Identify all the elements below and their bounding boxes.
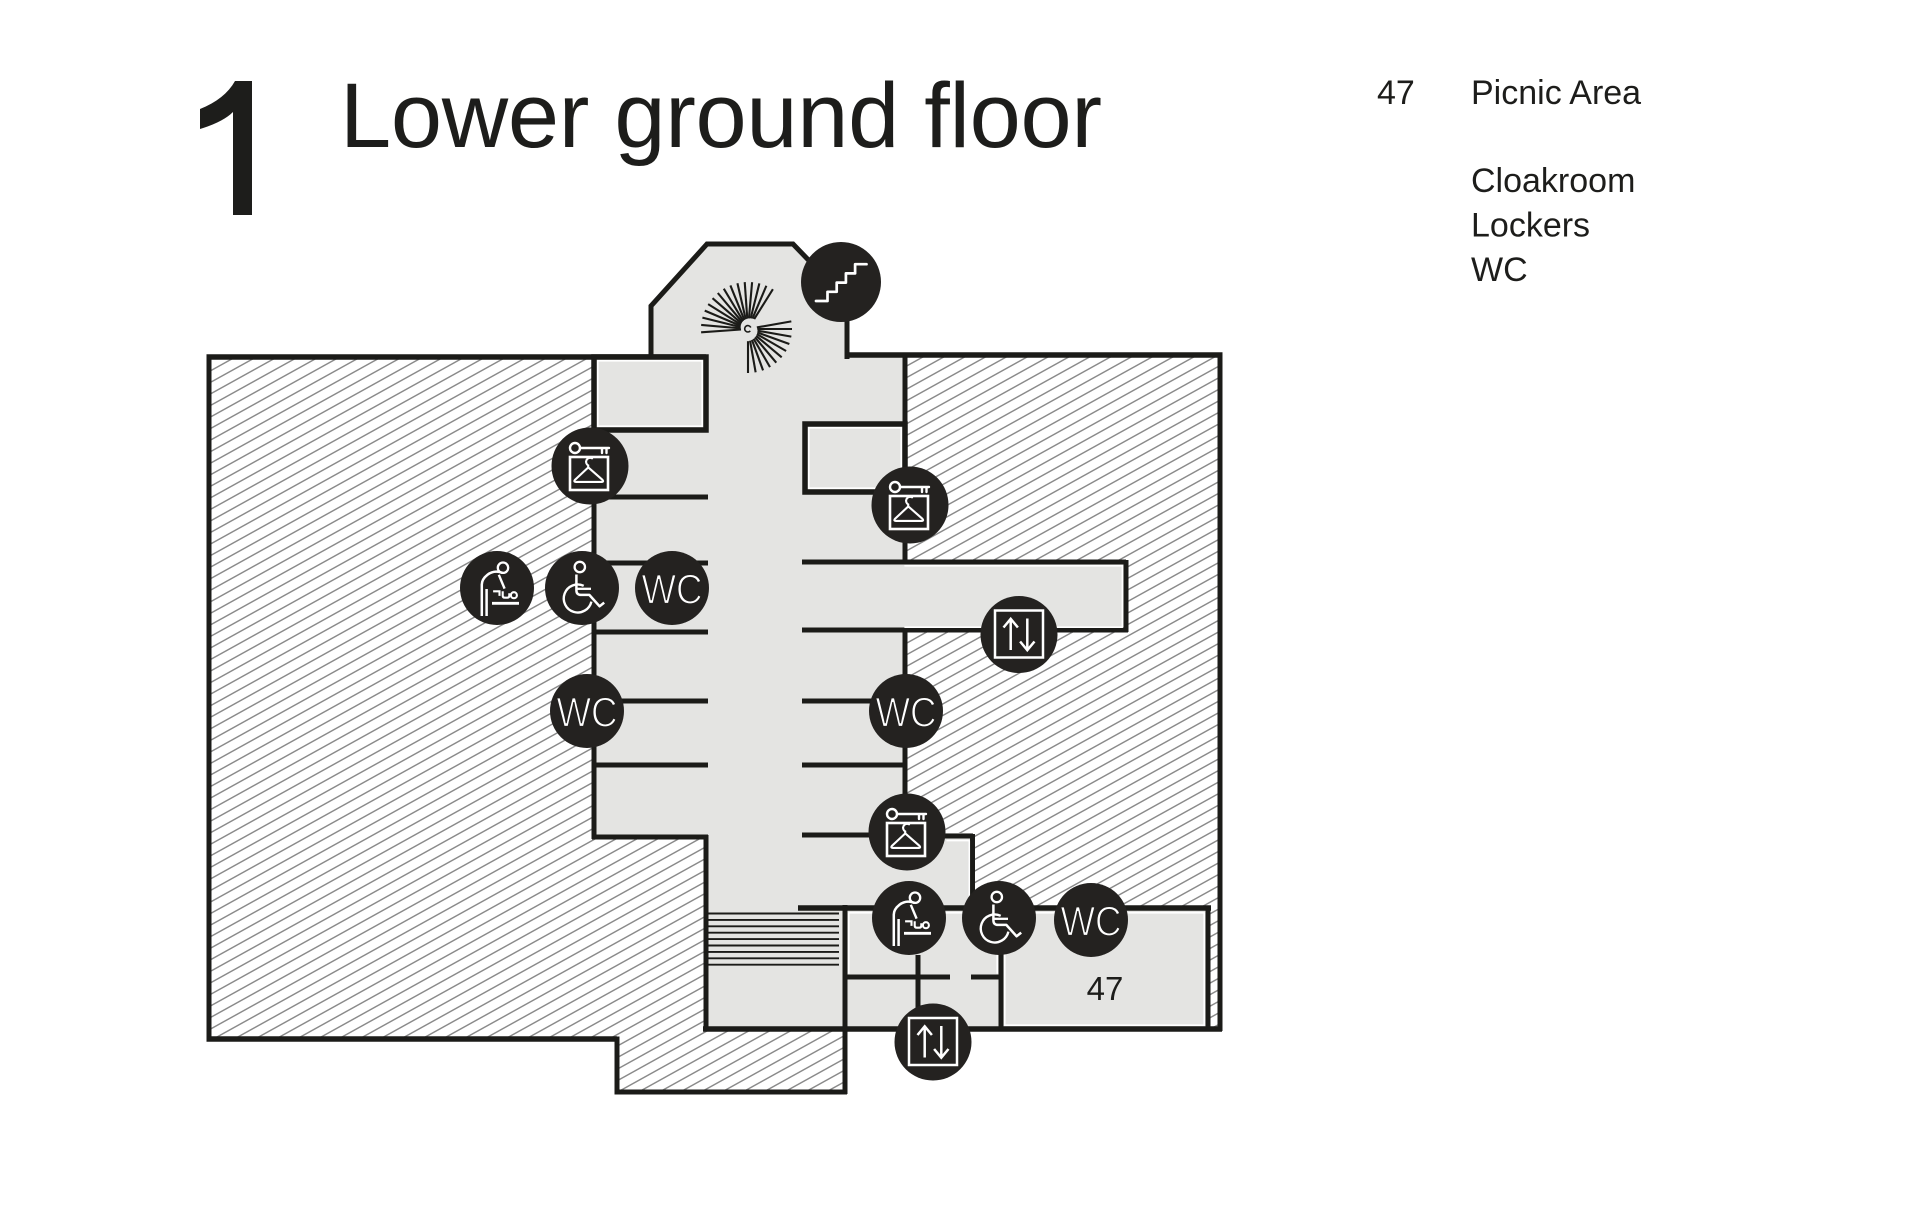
svg-text:Lower ground floor: Lower ground floor bbox=[340, 65, 1102, 167]
svg-text:Picnic Area: Picnic Area bbox=[1471, 74, 1641, 112]
svg-text:WC: WC bbox=[1061, 897, 1122, 944]
svg-text:WC: WC bbox=[876, 688, 937, 735]
svg-text:47: 47 bbox=[1377, 74, 1415, 112]
svg-text:Cloakroom: Cloakroom bbox=[1471, 162, 1635, 200]
svg-text:47: 47 bbox=[1087, 970, 1124, 1007]
svg-text:WC: WC bbox=[642, 565, 703, 612]
svg-text:WC: WC bbox=[1471, 251, 1528, 289]
svg-text:Lockers: Lockers bbox=[1471, 207, 1590, 245]
svg-text:WC: WC bbox=[557, 688, 618, 735]
